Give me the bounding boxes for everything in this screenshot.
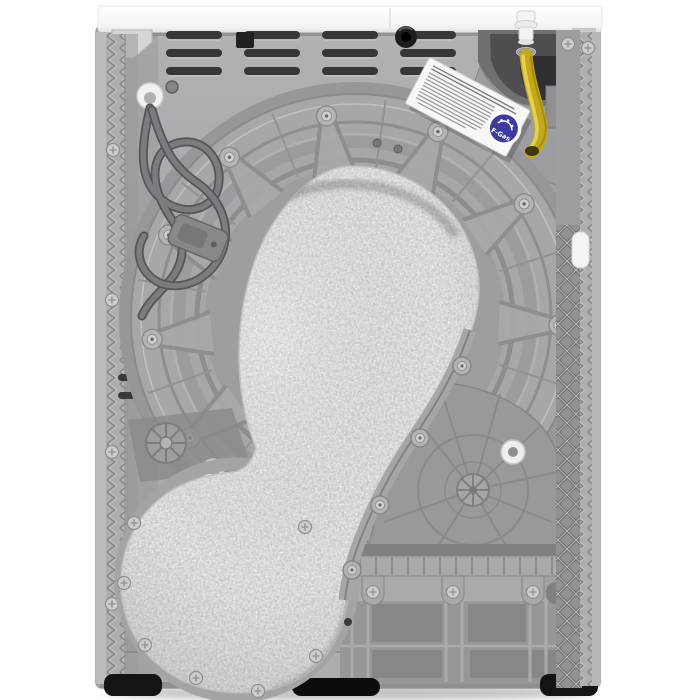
hex-bolt — [166, 81, 178, 93]
product-photo-stage: Rear view of a white freestanding tumble… — [0, 0, 700, 700]
dryer-rear-photo: Rear view of a white freestanding tumble… — [0, 0, 700, 700]
hose-opening — [525, 146, 539, 156]
panel-slot — [572, 232, 589, 268]
cable-clip — [236, 32, 254, 48]
right-edge-trim — [556, 30, 600, 688]
foot-left — [104, 674, 162, 696]
